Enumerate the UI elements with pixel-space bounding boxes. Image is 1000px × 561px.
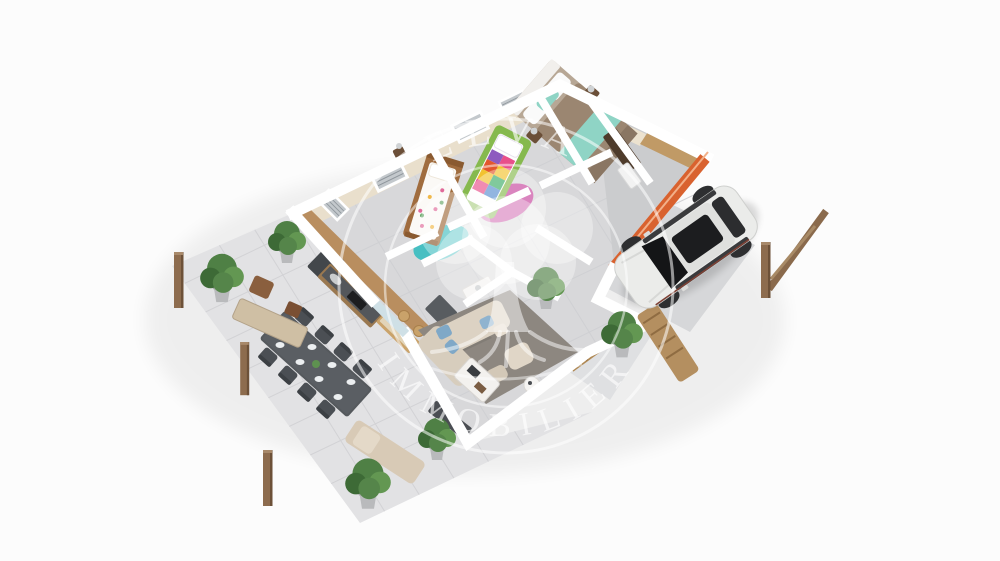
floor-plan-render: ELVA IMMOBILIER <box>0 0 1000 561</box>
lamp <box>396 143 402 149</box>
floor-plan-canvas: ELVA IMMOBILIER <box>0 0 1000 561</box>
carport-brace <box>771 226 815 279</box>
pergola-post <box>263 450 273 506</box>
carport-post-structure <box>761 211 826 298</box>
pergola-post <box>761 242 771 298</box>
table-centerpiece <box>312 360 320 368</box>
pergola-post <box>174 252 184 308</box>
carport-beam <box>769 211 826 289</box>
bar-stool <box>399 311 410 322</box>
cup <box>528 381 532 385</box>
pergola-post <box>240 342 249 395</box>
